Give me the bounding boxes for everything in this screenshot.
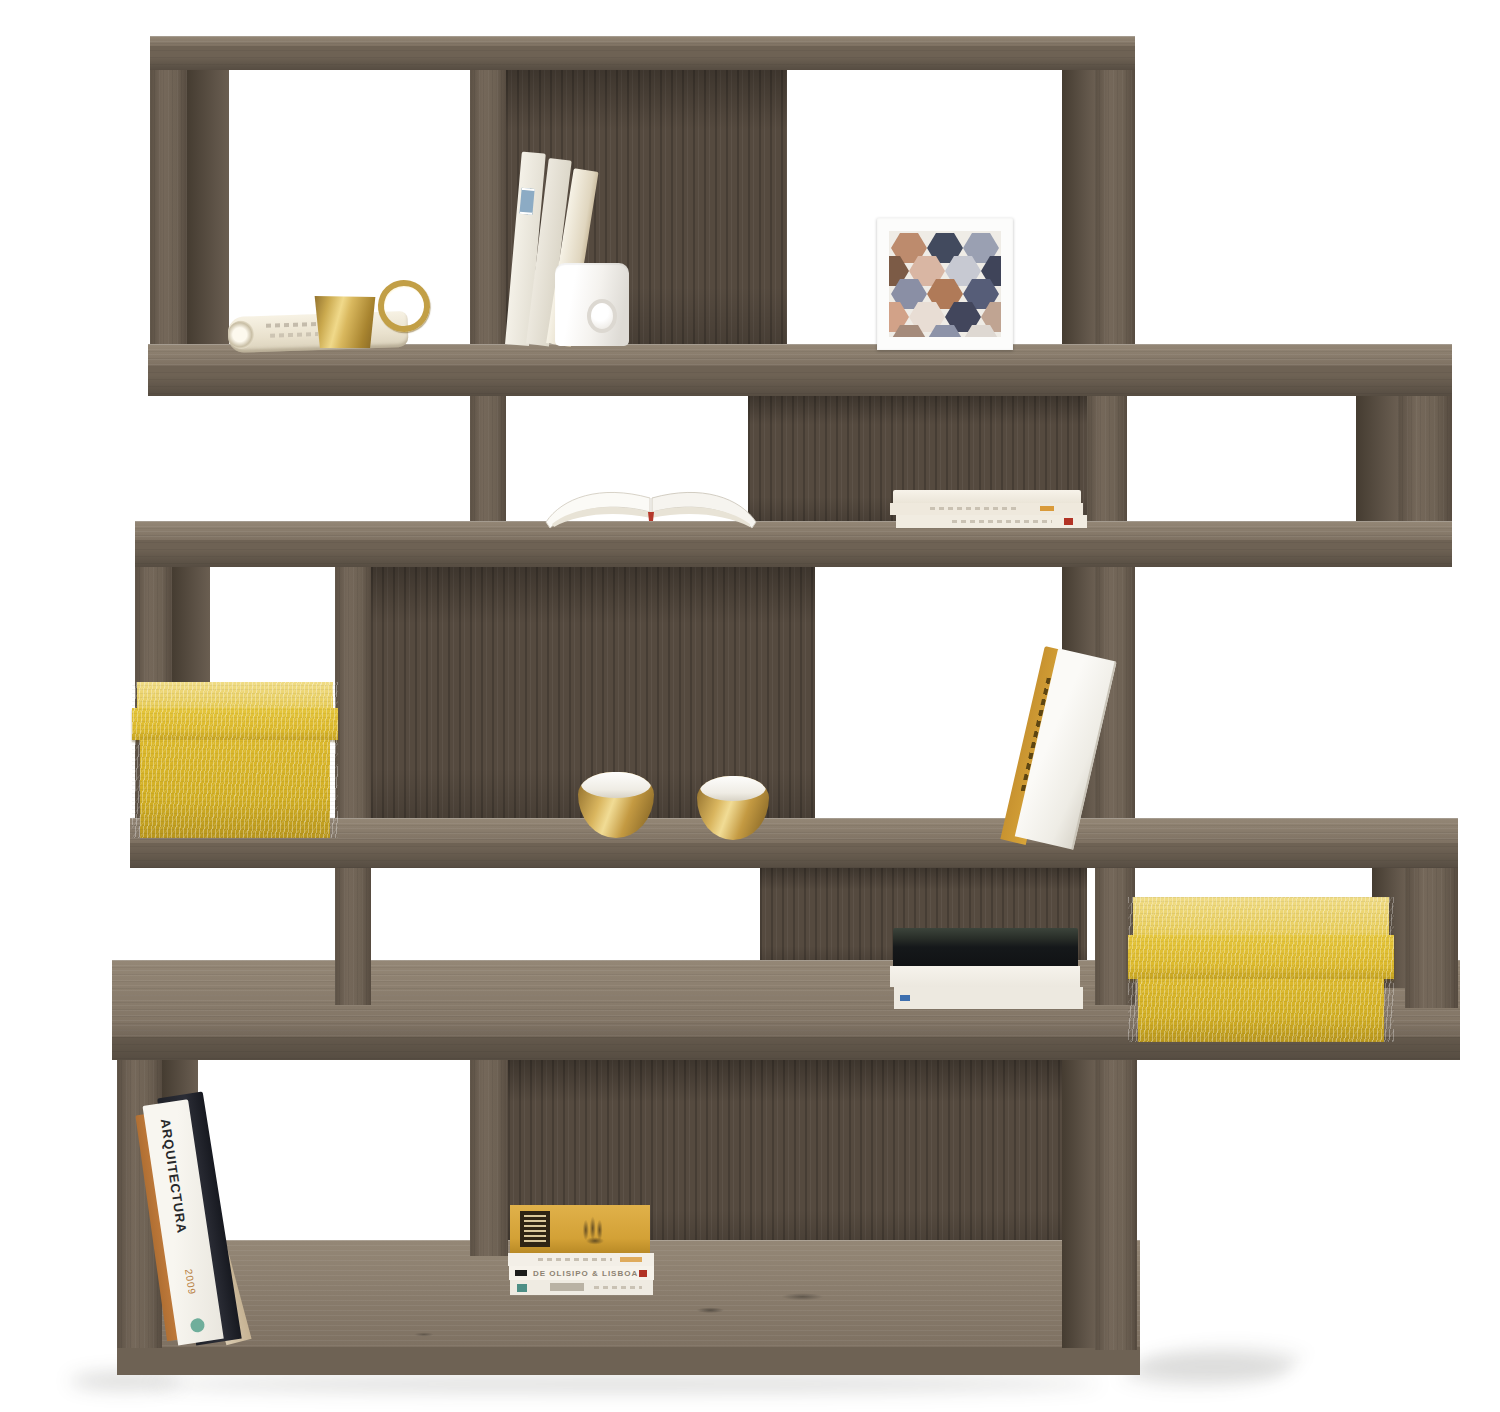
divider-row1	[470, 70, 506, 344]
booklet-3-red-mark	[1064, 518, 1073, 525]
arquitectura-year: 2009	[183, 1268, 198, 1296]
right-side-panel-row5	[1095, 1060, 1137, 1350]
green-sticker	[190, 1317, 206, 1333]
brass-cup	[312, 296, 378, 348]
booklet-1	[893, 490, 1081, 503]
stack5-book-4	[510, 1280, 653, 1295]
right-panel-inner-face-row5	[1062, 1060, 1095, 1348]
book-stack-row5: DE OLISIPO & LISBOA	[508, 1205, 654, 1295]
stack5-book3-black-mark	[515, 1270, 527, 1276]
left-side-panel-row1	[150, 36, 187, 396]
end-panel-inner-face-row2	[1356, 396, 1398, 521]
right-end-panel-row4	[1405, 868, 1458, 1008]
yellow-box-right-body	[1138, 979, 1384, 1042]
open-book	[538, 472, 764, 530]
yellow-box-lid-top	[137, 682, 333, 710]
right-side-panel-row1	[1095, 36, 1135, 344]
divider-row3	[335, 567, 371, 818]
yellow-box-right-lid-top	[1133, 897, 1389, 937]
white-book-1	[890, 966, 1080, 987]
yellow-box-lid-flap	[132, 708, 338, 740]
white-book-2	[894, 987, 1083, 1009]
amber-book-emblem	[572, 1213, 618, 1247]
stack5-book2-text	[538, 1258, 612, 1261]
right-panel-inner-face-row1	[1062, 70, 1095, 344]
mug-dimple	[587, 299, 617, 333]
black-book	[893, 928, 1078, 968]
floor-shadow-right	[1120, 1350, 1305, 1384]
divider-row5	[470, 1060, 508, 1256]
hexagon-art-print	[889, 231, 1001, 337]
magazine-page-lines-2	[270, 332, 318, 338]
stack5-book2-orange-text	[620, 1257, 642, 1262]
amber-book	[510, 1205, 650, 1253]
blue-sticker	[519, 188, 534, 215]
amber-book-text-lines	[524, 1215, 546, 1243]
yellow-box-body	[140, 740, 330, 838]
white-mug	[555, 263, 629, 346]
magazine-page-lines	[266, 322, 326, 328]
stack5-book3-red-mark	[639, 1270, 647, 1277]
divider-row2	[470, 396, 506, 521]
book-stack-row4	[890, 928, 1083, 1010]
product-photo-stage: ARQUITECTURA 2009 DE OLISIPO & LISBOA	[0, 0, 1500, 1412]
booklet-3-spine-text	[952, 520, 1052, 523]
white-book-blue-mark	[900, 995, 910, 1001]
divider-row4	[335, 868, 371, 1005]
booklet-2	[890, 503, 1083, 515]
floor-shadow-main	[150, 1376, 1100, 1392]
booklet-stack-row2	[890, 490, 1087, 528]
stack5-book-2	[508, 1253, 654, 1266]
olisipo-title: DE OLISIPO & LISBOA	[533, 1269, 638, 1278]
magazine-page-curl	[228, 320, 255, 349]
yellow-storage-box-right	[1128, 897, 1394, 1042]
shelf-board-3	[135, 521, 1452, 567]
yellow-box-right-lid-flap	[1128, 935, 1394, 979]
picture-frame	[877, 218, 1013, 350]
left-panel-inner-face-row1	[187, 70, 229, 344]
shelf-board-top	[150, 36, 1135, 70]
booklet-2-spine-text	[930, 507, 1020, 510]
divider-lane-right-row2	[1087, 396, 1127, 521]
yellow-storage-box-left	[132, 682, 338, 838]
stack5-book-3: DE OLISIPO & LISBOA	[509, 1266, 654, 1280]
stack5-book4-teal-mark	[517, 1284, 527, 1292]
arquitectura-title: ARQUITECTURA	[158, 1118, 190, 1235]
stack5-book4-grey-label	[550, 1283, 584, 1291]
shelf-board-2	[148, 344, 1452, 396]
booklet-2-orange-mark	[1040, 506, 1054, 511]
amber-book-text-panel	[520, 1211, 550, 1247]
booklet-3	[896, 515, 1087, 528]
stack5-book4-text	[594, 1286, 642, 1289]
